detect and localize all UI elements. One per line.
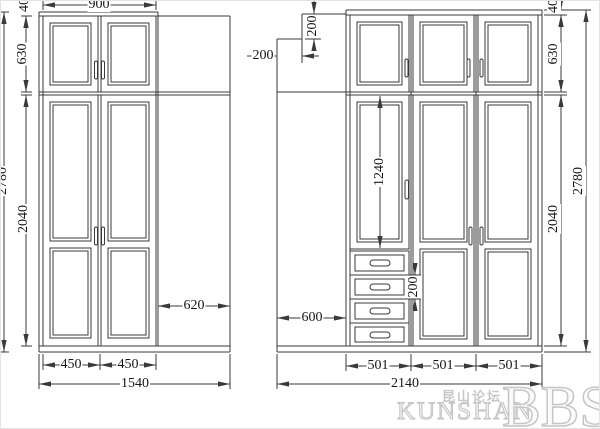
right-wardrobe-structure [277,10,542,352]
left-wardrobe-handles [95,61,105,245]
right-dimension-lines [247,1,591,389]
dim-left-side-width: 620 [183,299,206,313]
dim-right-open-width: 600 [301,311,324,325]
right-wardrobe-handles [370,59,483,338]
drawing-canvas: 900 40 630 2040 2780 620 450 450 1540 20… [0,0,600,429]
dim-left-doors-width: 900 [88,0,111,12]
dim-left-total-height: 2780 [0,166,10,196]
dim-right-lower-height: 2040 [547,204,561,234]
dim-right-tall-door-height: 1240 [373,157,387,187]
left-dimension-lines [1,1,230,389]
dim-right-col3-width: 501 [498,359,521,373]
dim-left-lower-height: 2040 [17,204,31,234]
dim-right-total-width: 2140 [390,377,420,391]
dim-right-top-panel: 40 [547,0,561,14]
dim-right-drawer-height: 200 [407,276,421,299]
dim-left-door1-width: 450 [60,358,83,372]
dim-right-notch-height: 200 [306,15,320,38]
dim-right-col1-width: 501 [367,359,390,373]
dim-right-upper-height: 630 [547,43,561,66]
dim-left-upper-height: 630 [16,43,30,66]
dim-left-door2-width: 450 [117,358,140,372]
dim-left-top-panel: 40 [18,0,32,13]
dim-left-total-width: 1540 [120,377,150,391]
dim-right-notch-width: 200 [252,49,275,63]
dim-right-total-height: 2780 [572,166,586,196]
watermark-bbs-logo: BBS [502,373,600,429]
dim-right-col2-width: 501 [432,359,455,373]
